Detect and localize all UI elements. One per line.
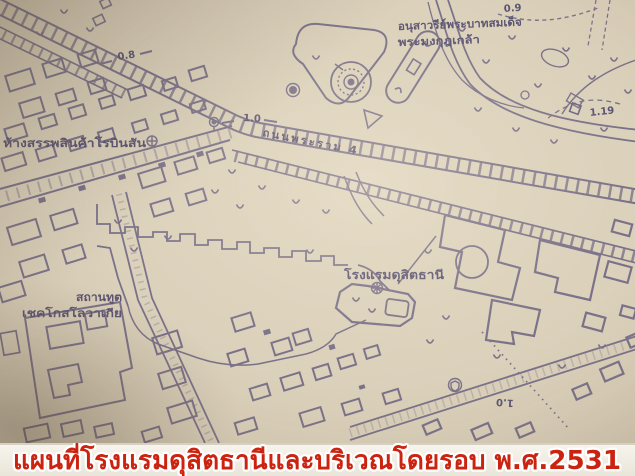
caption-bar: แผนที่โรงแรมดุสิตธานีและบริเวณโดยรอบ พ.ศ…: [0, 443, 635, 476]
distance-marker-10b: 1.0: [496, 396, 514, 408]
label-department-store: ห้างสรรพสินค้าโรบินสัน: [3, 135, 146, 150]
caption-title: แผนที่โรงแรมดุสิตธานีและบริเวณโดยรอบ พ.ศ…: [13, 443, 621, 476]
label-hotel: โรงแรมดุสิตธานี: [343, 267, 445, 283]
circled-asterisk-icon: [372, 283, 383, 294]
label-embassy-line2: เชคโกสโลวาเกีย: [22, 306, 122, 320]
circled-cross-icon: [147, 136, 157, 146]
distance-marker-10a: 1.0: [243, 113, 261, 125]
paper-background: [0, 0, 635, 443]
label-embassy-line1: สถานทูต: [76, 291, 122, 305]
distance-marker-09: 0.9: [503, 3, 521, 15]
city-map: ห้างสรรพสินค้าโรบินสัน อนุสาวรีย์พระบาทส…: [0, 0, 635, 443]
map-photo-page: ห้างสรรพสินค้าโรบินสัน อนุสาวรีย์พระบาทส…: [0, 0, 635, 476]
